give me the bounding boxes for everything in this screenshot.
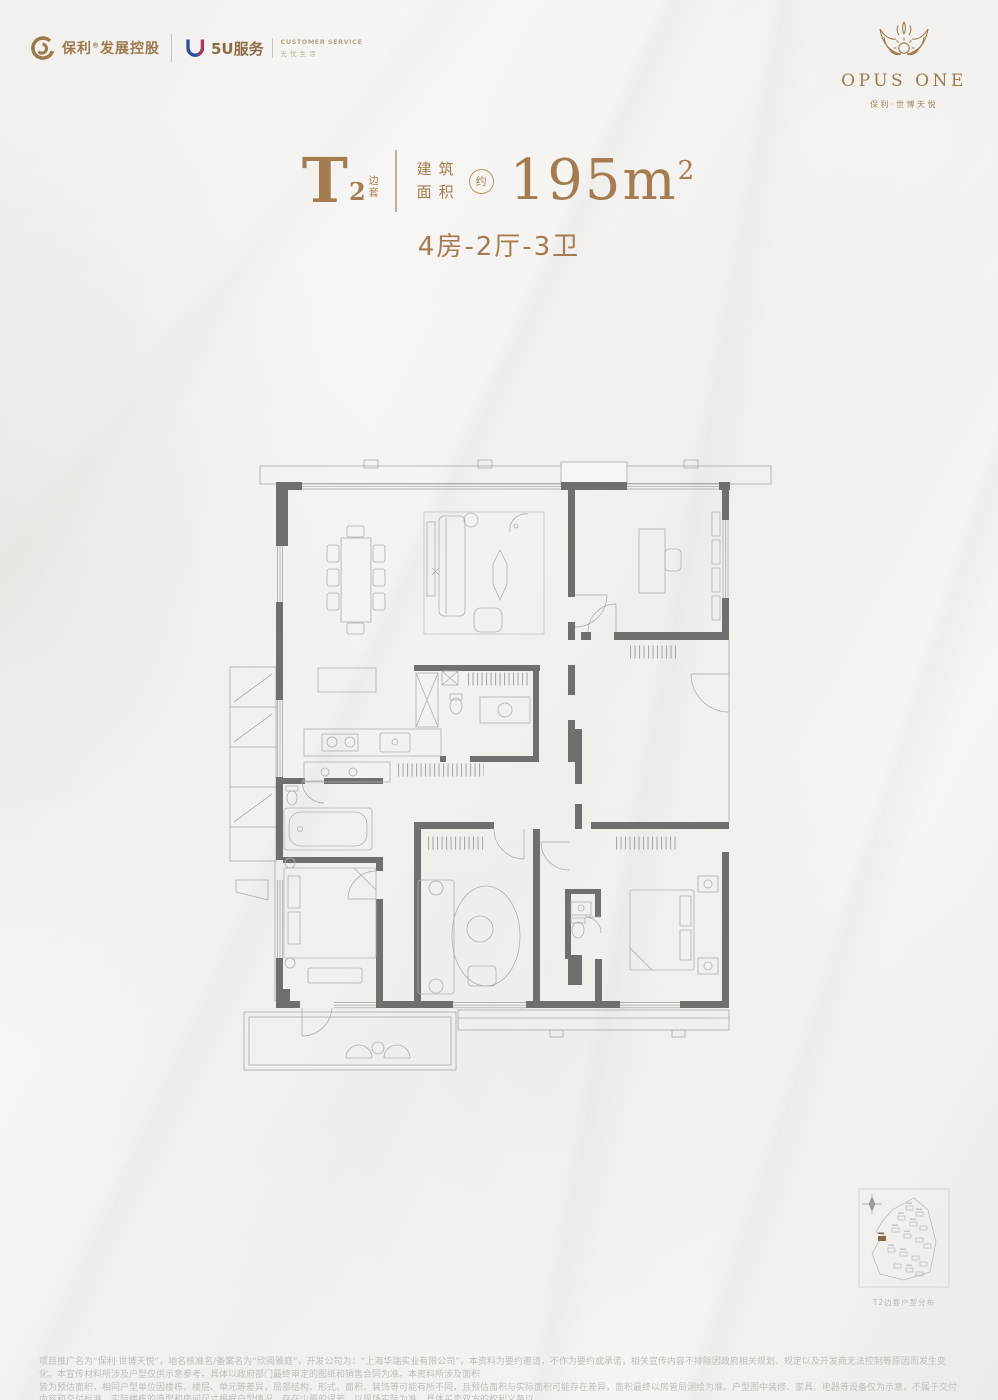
site-plan-map: [858, 1188, 950, 1292]
service-logo-text: 5U服务: [211, 38, 264, 59]
5u-logo-icon: [183, 36, 207, 60]
dining-table: [327, 526, 385, 634]
powder-room-fixtures: [450, 694, 530, 723]
site-plan-caption: T2边套户型分布: [858, 1297, 950, 1308]
disclaimer-line-2: 皆为预估面积，相同户型单位因楼栋、楼层、单元等差异，局部结构、形式、面积、装饰等…: [39, 1382, 961, 1400]
kitchen-furniture: [304, 668, 441, 782]
unit-location-marker: [878, 1233, 886, 1242]
unit-type-tag: 边套: [369, 176, 379, 200]
study-furniture: [639, 512, 720, 620]
header-divider: [171, 34, 172, 62]
legal-disclaimer: 项目推广名为“保利·世博天悦”，地名核准名/备案名为“欣阅雅庭”，开发公司为：“…: [39, 1356, 961, 1400]
utility-shaft: [416, 671, 458, 727]
phoenix-emblem-icon: [872, 20, 936, 64]
brand-name: OPUS ONE: [836, 71, 972, 91]
equipment-annex: [230, 667, 276, 1001]
poster-page: 保利®发展控股 5U服务 CUSTOMER SERVICE 无忧生活: [0, 0, 998, 1400]
unit-type-letter: T: [302, 152, 348, 211]
living-room-furniture: [424, 512, 544, 634]
unit-type: T 2 边套: [302, 152, 379, 211]
service-taglines: CUSTOMER SERVICE 无忧生活: [281, 38, 363, 58]
unit-title: T 2 边套 建筑面积 约 195m2: [0, 150, 998, 212]
bedroom-right: [630, 876, 718, 974]
floor-plan-drawing: [228, 452, 788, 1102]
rooms-summary: 4房-2厅-3卫: [0, 226, 998, 263]
balcony: [244, 1012, 456, 1070]
compass-icon: [862, 1194, 882, 1214]
unit-type-number: 2: [349, 177, 366, 206]
title-divider: [395, 150, 397, 212]
bathroom-small-fixtures: [571, 902, 591, 938]
poly-logo-icon: [28, 34, 56, 62]
service-tagline-cn: 无忧生活: [281, 48, 363, 58]
bedroom-left: [284, 858, 376, 983]
brand-subtitle: 保利·世博天悦: [836, 99, 972, 110]
windows: [278, 484, 729, 1008]
area-label: 建筑面积: [417, 158, 461, 205]
publisher-logos: 保利®发展控股 5U服务 CUSTOMER SERVICE 无忧生活: [28, 34, 362, 62]
approx-badge: 约: [469, 169, 494, 194]
header-divider: [272, 38, 273, 58]
poly-logo-text: 保利®发展控股: [62, 38, 160, 58]
bedroom-center: [418, 880, 520, 994]
project-brand: OPUS ONE 保利·世博天悦: [836, 20, 972, 110]
disclaimer-line-1: 项目推广名为“保利·世博天悦”，地名核准名/备案名为“欣阅雅庭”，开发公司为：“…: [39, 1356, 961, 1382]
walls: [276, 482, 730, 1008]
service-tagline-en: CUSTOMER SERVICE: [281, 38, 363, 46]
area-value: 195m2: [510, 153, 697, 209]
bathroom-fixtures: [284, 786, 372, 850]
